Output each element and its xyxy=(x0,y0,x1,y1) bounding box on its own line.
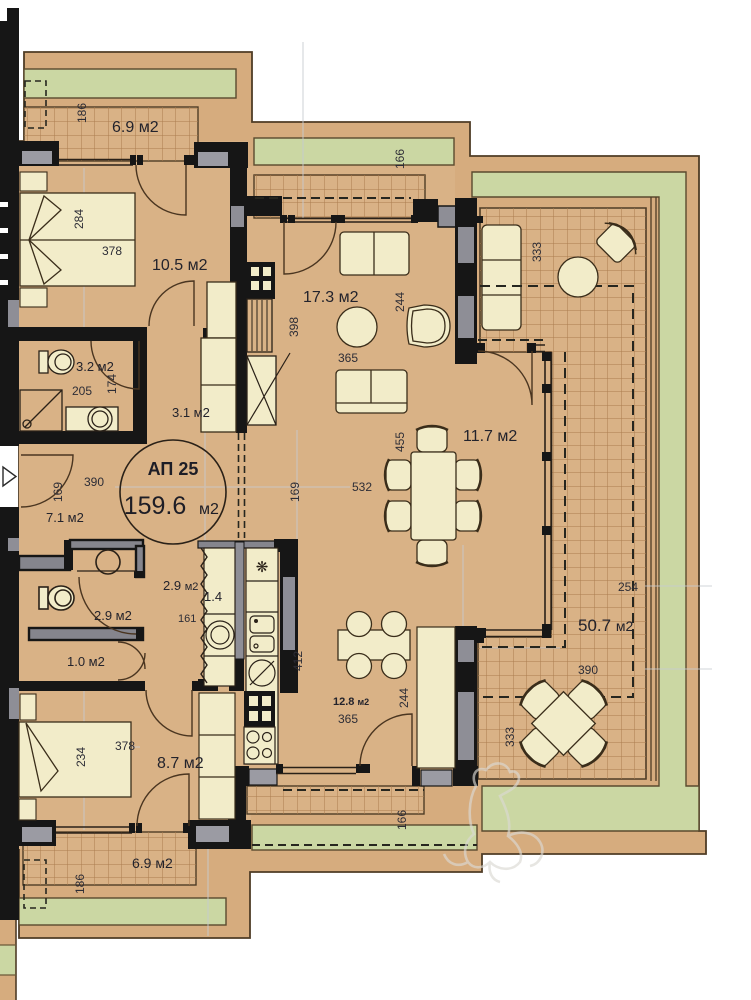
svg-text:АП 25: АП 25 xyxy=(148,459,199,479)
svg-text:169: 169 xyxy=(288,482,302,502)
svg-text:❋: ❋ xyxy=(256,559,269,576)
svg-text:412: 412 xyxy=(291,651,305,671)
svg-text:365: 365 xyxy=(338,351,358,365)
svg-text:1.0 м2: 1.0 м2 xyxy=(67,654,105,669)
svg-text:11.7 м2: 11.7 м2 xyxy=(463,428,517,445)
svg-text:159.6: 159.6 xyxy=(124,492,187,520)
svg-text:390: 390 xyxy=(578,663,598,677)
svg-text:234: 234 xyxy=(74,747,88,767)
svg-text:169: 169 xyxy=(51,482,65,502)
svg-text:2.9 м2: 2.9 м2 xyxy=(94,608,132,623)
svg-text:205: 205 xyxy=(72,384,92,398)
svg-text:455: 455 xyxy=(393,432,407,452)
svg-text:1.4: 1.4 xyxy=(204,589,222,604)
svg-text:186: 186 xyxy=(73,874,87,894)
svg-text:398: 398 xyxy=(287,317,301,337)
svg-text:3.2 м2: 3.2 м2 xyxy=(76,359,114,374)
svg-text:333: 333 xyxy=(503,727,517,747)
svg-text:244: 244 xyxy=(397,688,411,708)
svg-text:532: 532 xyxy=(352,480,372,494)
svg-text:284: 284 xyxy=(72,209,86,229)
svg-text:244: 244 xyxy=(393,292,407,312)
svg-text:333: 333 xyxy=(530,242,544,262)
svg-text:166: 166 xyxy=(395,810,409,830)
svg-text:3.1 м2: 3.1 м2 xyxy=(172,405,210,420)
svg-text:378: 378 xyxy=(115,739,135,753)
svg-text:17.3 м2: 17.3 м2 xyxy=(303,289,359,306)
svg-text:м2: м2 xyxy=(199,501,219,518)
svg-text:6.9 м2: 6.9 м2 xyxy=(132,855,173,871)
svg-text:10.5 м2: 10.5 м2 xyxy=(152,257,208,274)
svg-text:50.7 м2: 50.7 м2 xyxy=(578,616,633,635)
svg-text:174: 174 xyxy=(105,374,119,394)
svg-text:2.9 м2: 2.9 м2 xyxy=(163,578,198,593)
svg-text:6.9 м2: 6.9 м2 xyxy=(112,119,159,136)
svg-text:254: 254 xyxy=(618,580,638,594)
svg-text:12.8 м2: 12.8 м2 xyxy=(333,696,369,708)
svg-text:8.7 м2: 8.7 м2 xyxy=(157,755,204,772)
svg-text:365: 365 xyxy=(338,712,358,726)
svg-text:390: 390 xyxy=(84,475,104,489)
svg-text:186: 186 xyxy=(75,103,89,123)
svg-text:161: 161 xyxy=(178,613,196,625)
svg-text:7.1 м2: 7.1 м2 xyxy=(46,510,84,525)
svg-text:378: 378 xyxy=(102,244,122,258)
svg-text:166: 166 xyxy=(393,149,407,169)
